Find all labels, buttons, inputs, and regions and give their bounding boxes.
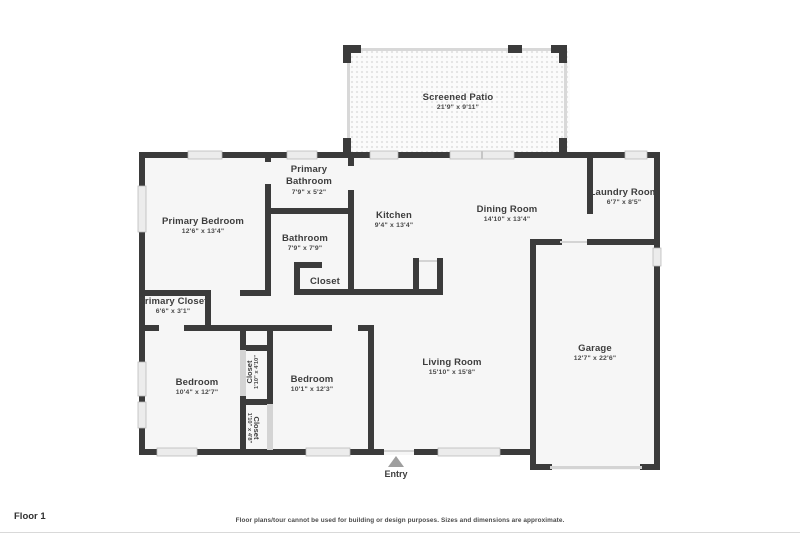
room-dims: 1'10" x 4'10": [254, 355, 261, 389]
room-dims: 9'4" x 13'4": [375, 222, 414, 231]
room-name: Primary Closet: [138, 296, 207, 308]
room-dims: 14'10" x 13'4": [477, 216, 538, 225]
room-name: Bedroom: [176, 377, 219, 389]
room-name: Living Room: [422, 357, 481, 369]
room-label-primary-bedroom: Primary Bedroom 12'6" x 13'4": [162, 216, 244, 237]
room-dims: 21'9" x 9'11": [423, 104, 494, 113]
entry-label: Entry: [384, 469, 407, 479]
room-name: Primary Bathroom: [273, 164, 345, 189]
room-dims: 10'4" x 12'7": [176, 389, 219, 398]
room-dims: 1'10" x 4'8": [245, 413, 252, 444]
room-name: Garage: [574, 343, 617, 355]
room-name: Closet: [252, 413, 261, 444]
room-label-closet-upper: Closet 1'10" x 4'10": [245, 355, 261, 389]
room-dims: 15'10" x 15'8": [422, 369, 481, 378]
room-label-screened-patio: Screened Patio 21'9" x 9'11": [423, 92, 494, 113]
room-name: Kitchen: [375, 210, 414, 222]
room-name: Laundry Room: [590, 187, 659, 199]
floorplan-drawing: [0, 0, 800, 533]
room-label-closet-lower: Closet 1'10" x 4'8": [245, 413, 261, 444]
room-name: Bathroom: [282, 233, 328, 245]
room-label-dining-room: Dining Room 14'10" x 13'4": [477, 204, 538, 225]
room-label-primary-bathroom: Primary Bathroom 7'9" x 5'2": [273, 164, 345, 198]
room-name: Primary Bedroom: [162, 216, 244, 228]
room-label-bedroom-2: Bedroom 10'1" x 12'3": [291, 374, 334, 395]
room-dims: 7'9" x 5'2": [273, 189, 345, 198]
disclaimer-text: Floor plans/tour cannot be used for buil…: [0, 517, 800, 524]
room-name: Bedroom: [291, 374, 334, 386]
room-dims: 6'6" x 3'1": [138, 308, 207, 317]
room-name: Closet: [310, 276, 340, 288]
room-label-bathroom: Bathroom 7'9" x 7'9": [282, 233, 328, 254]
room-label-kitchen: Kitchen 9'4" x 13'4": [375, 210, 414, 231]
room-label-bedroom-1: Bedroom 10'4" x 12'7": [176, 377, 219, 398]
room-label-hall-closet: Closet: [310, 276, 340, 288]
room-label-laundry-room: Laundry Room 6'7" x 8'5": [590, 187, 659, 208]
floorplan-canvas: Screened Patio 21'9" x 9'11" Primary Bed…: [0, 0, 800, 533]
room-dims: 12'6" x 13'4": [162, 228, 244, 237]
room-fills: [139, 48, 660, 470]
room-name: Closet: [245, 355, 254, 389]
room-name: Dining Room: [477, 204, 538, 216]
entry-arrow-icon: [388, 456, 404, 467]
room-name: Screened Patio: [423, 92, 494, 104]
room-dims: 6'7" x 8'5": [590, 199, 659, 208]
room-dims: 12'7" x 22'6": [574, 355, 617, 364]
room-dims: 7'9" x 7'9": [282, 245, 328, 254]
room-label-garage: Garage 12'7" x 22'6": [574, 343, 617, 364]
room-dims: 10'1" x 12'3": [291, 386, 334, 395]
room-label-living-room: Living Room 15'10" x 15'8": [422, 357, 481, 378]
room-label-primary-closet: Primary Closet 6'6" x 3'1": [138, 296, 207, 317]
